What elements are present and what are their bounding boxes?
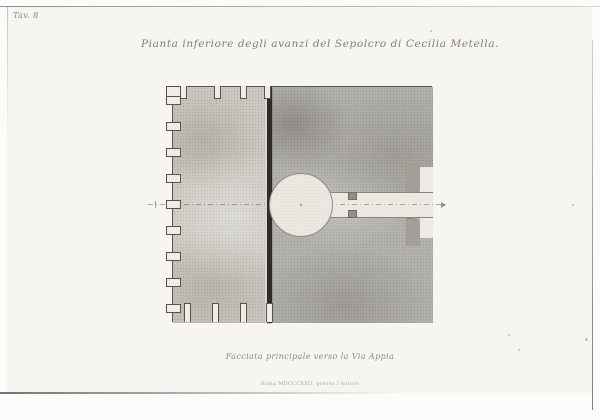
scanned-plate: Tav. 8 Pianta inferiore degli avanzi del… <box>0 0 600 420</box>
top-slot <box>180 86 187 99</box>
entrance-corridor <box>331 192 433 218</box>
plan-caption: Facciata principale verso la Via Appia <box>20 352 600 361</box>
door-jamb-top <box>348 192 357 200</box>
top-slot <box>214 86 221 99</box>
foxing-speck <box>585 338 588 341</box>
putlog-tab <box>166 148 181 157</box>
bottom-slot <box>184 303 191 322</box>
top-slot <box>240 86 247 99</box>
putlog-tab <box>166 252 181 261</box>
putlog-tab <box>166 96 181 105</box>
foxing-speck <box>572 204 574 206</box>
putlog-tab <box>166 226 181 235</box>
putlog-tab <box>166 304 181 313</box>
axis-tick <box>155 201 156 208</box>
bottom-slot <box>240 303 247 322</box>
putlog-tab <box>166 174 181 183</box>
putlog-tab <box>166 278 181 287</box>
plate-edge-top <box>0 6 600 7</box>
publisher-imprint: Roma MDCCCXXII. presso l'Autore <box>20 381 600 387</box>
plate-edge-bottom <box>0 392 420 394</box>
door-jamb-bottom <box>348 210 357 218</box>
axis-arrow <box>441 202 446 208</box>
plate-edge-left <box>7 7 8 137</box>
bottom-slot <box>266 303 273 322</box>
foxing-speck <box>430 30 432 32</box>
plate-title: Pianta inferiore degli avanzi del Sepolc… <box>40 38 600 50</box>
door-pier-bottom <box>406 218 420 246</box>
top-slot <box>264 86 271 99</box>
foxing-speck <box>508 334 510 336</box>
putlog-tab <box>166 200 181 209</box>
plate-number: Tav. 8 <box>13 11 39 20</box>
door-pier-top <box>406 163 420 193</box>
foxing-speck <box>518 349 520 351</box>
bottom-slot <box>212 303 219 322</box>
putlog-tab <box>166 122 181 131</box>
compass-prick <box>300 204 302 206</box>
masonry-core-left <box>173 87 266 323</box>
